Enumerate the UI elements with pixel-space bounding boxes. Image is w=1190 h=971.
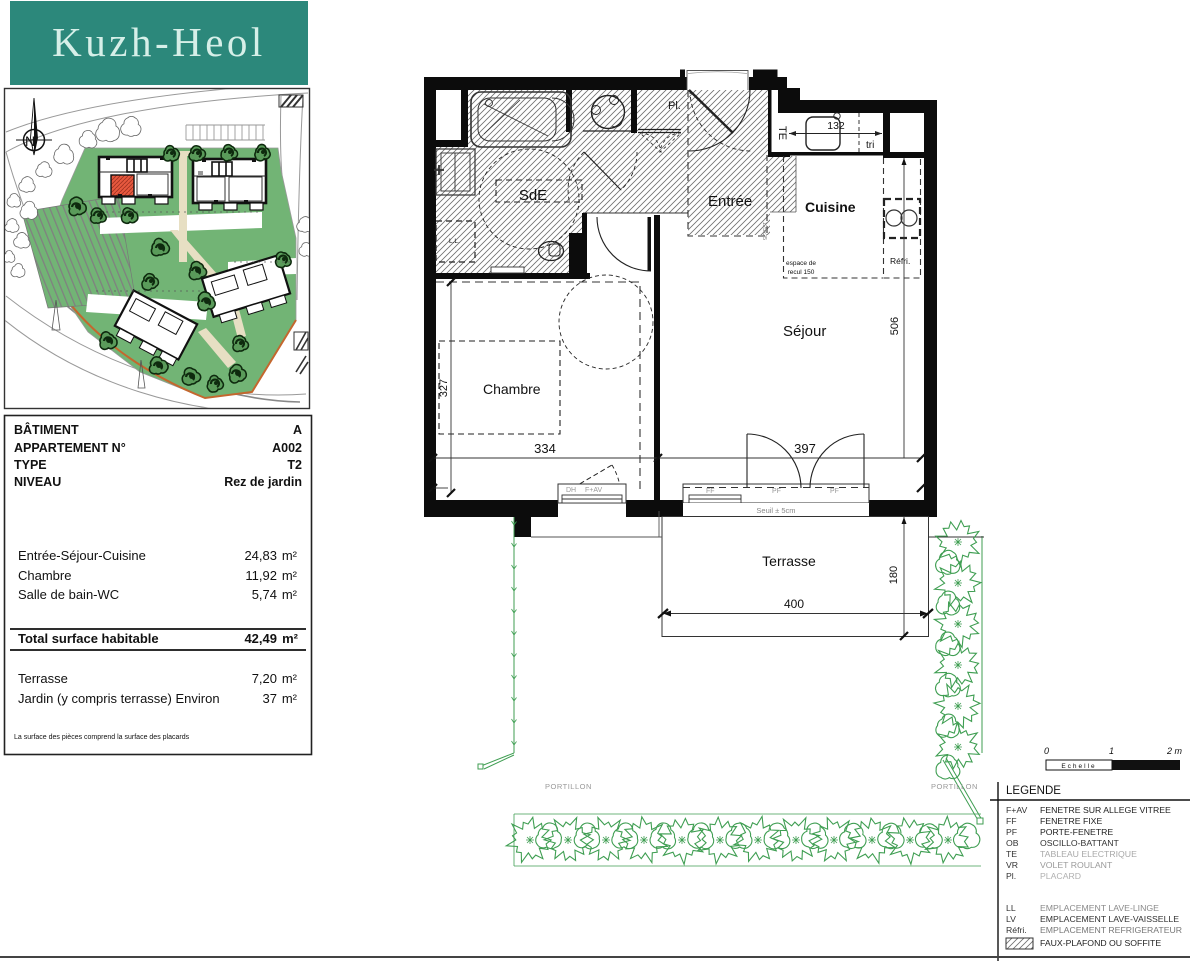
svg-text:VR: VR [1006, 860, 1018, 870]
svg-text:La surface des pièces comprend: La surface des pièces comprend la surfac… [14, 734, 190, 741]
svg-text:397: 397 [794, 441, 816, 456]
svg-text:m²: m² [282, 587, 298, 602]
svg-text:T2: T2 [287, 458, 302, 472]
svg-text:tri: tri [866, 140, 874, 151]
svg-text:0: 0 [1044, 746, 1049, 756]
svg-text:Séjour: Séjour [783, 323, 826, 340]
svg-text:Pl.: Pl. [668, 100, 681, 112]
svg-text:OSCILLO-BATTANT: OSCILLO-BATTANT [1040, 838, 1120, 848]
svg-text:LEGENDE: LEGENDE [1006, 785, 1061, 797]
svg-text:F+AV: F+AV [585, 487, 603, 494]
svg-text:PF: PF [830, 488, 839, 495]
svg-text:Pl.: Pl. [1006, 871, 1016, 881]
svg-text:PF: PF [772, 488, 781, 495]
svg-text:m²: m² [282, 631, 299, 646]
svg-text:TE: TE [776, 126, 788, 140]
svg-text:327: 327 [438, 379, 450, 397]
svg-text:A: A [293, 423, 302, 437]
svg-text:Réfri.: Réfri. [890, 256, 910, 266]
svg-text:Rez de jardin: Rez de jardin [224, 475, 302, 489]
svg-text:Kuzh-Heol: Kuzh-Heol [52, 19, 266, 65]
svg-text:DH: DH [566, 487, 576, 494]
svg-text:PORTILLON: PORTILLON [931, 782, 978, 791]
svg-text:FF: FF [706, 488, 715, 495]
svg-text:Cuisine: Cuisine [805, 199, 856, 215]
svg-text:Entrée: Entrée [708, 193, 752, 210]
svg-text:334: 334 [534, 441, 556, 456]
svg-text:m²: m² [282, 671, 298, 686]
svg-text:125x25: 125x25 [761, 222, 767, 240]
svg-text:Entrée-Séjour-Cuisine: Entrée-Séjour-Cuisine [18, 548, 146, 563]
svg-text:37: 37 [263, 691, 277, 706]
svg-text:LV: LV [1006, 914, 1016, 924]
svg-text:PF: PF [1006, 827, 1017, 837]
svg-text:PLACARD: PLACARD [1040, 871, 1081, 881]
svg-text:VOLET ROULANT: VOLET ROULANT [1040, 860, 1113, 870]
svg-text:2 m: 2 m [1166, 746, 1183, 756]
svg-text:m²: m² [282, 691, 298, 706]
svg-text:m²: m² [282, 548, 298, 563]
svg-text:APPARTEMENT N°: APPARTEMENT N° [14, 441, 126, 455]
svg-text:Chambre: Chambre [483, 381, 541, 397]
svg-text:11,92: 11,92 [245, 568, 277, 583]
svg-text:TABLEAU ELECTRIQUE: TABLEAU ELECTRIQUE [1040, 849, 1137, 859]
svg-text:LL: LL [1006, 903, 1016, 913]
svg-text:7,20: 7,20 [252, 671, 277, 686]
svg-text:F+AV: F+AV [1006, 805, 1028, 815]
svg-text:5,74: 5,74 [252, 587, 277, 602]
svg-text:FAUX-PLAFOND OU SOFFITE: FAUX-PLAFOND OU SOFFITE [1040, 938, 1161, 948]
svg-text:Jardin (y compris terrasse) En: Jardin (y compris terrasse) Environ [18, 691, 220, 706]
svg-text:BÂTIMENT: BÂTIMENT [14, 422, 79, 437]
svg-text:FENETRE SUR ALLEGE VITREE: FENETRE SUR ALLEGE VITREE [1040, 805, 1171, 815]
svg-text:N: N [25, 133, 35, 149]
svg-text:400: 400 [784, 597, 804, 611]
svg-text:L.L.: L.L. [449, 238, 460, 245]
svg-text:A002: A002 [272, 441, 302, 455]
svg-text:PORTILLON: PORTILLON [545, 782, 592, 791]
svg-text:espace de: espace de [786, 260, 816, 267]
svg-text:EMPLACEMENT REFRIGERATEUR: EMPLACEMENT REFRIGERATEUR [1040, 925, 1182, 935]
svg-text:Terrasse: Terrasse [762, 553, 816, 569]
svg-text:506: 506 [889, 317, 901, 335]
svg-text:TYPE: TYPE [14, 458, 47, 472]
svg-text:180: 180 [888, 566, 900, 584]
svg-text:Echelle: Echelle [1061, 763, 1096, 770]
svg-text:EMPLACEMENT LAVE-LINGE: EMPLACEMENT LAVE-LINGE [1040, 903, 1159, 913]
svg-text:Terrasse: Terrasse [18, 671, 68, 686]
svg-text:NIVEAU: NIVEAU [14, 475, 61, 489]
svg-text:recul 150: recul 150 [788, 269, 815, 276]
svg-text:EMPLACEMENT LAVE-VAISSELLE: EMPLACEMENT LAVE-VAISSELLE [1040, 914, 1179, 924]
svg-text:FF: FF [1006, 816, 1017, 826]
svg-text:Salle de bain-WC: Salle de bain-WC [18, 587, 119, 602]
svg-text:FENETRE FIXE: FENETRE FIXE [1040, 816, 1102, 826]
svg-text:1: 1 [1109, 746, 1114, 756]
svg-text:132: 132 [827, 120, 845, 132]
svg-text:42,49: 42,49 [244, 631, 277, 646]
svg-text:Réfri.: Réfri. [1006, 925, 1027, 935]
svg-text:m²: m² [282, 568, 298, 583]
svg-text:Seuil ± 5cm: Seuil ± 5cm [756, 506, 795, 515]
svg-text:TE: TE [1006, 849, 1017, 859]
svg-text:Chambre: Chambre [18, 568, 71, 583]
svg-text:OB: OB [1006, 838, 1019, 848]
svg-text:PORTE-FENETRE: PORTE-FENETRE [1040, 827, 1113, 837]
svg-text:Total surface habitable: Total surface habitable [18, 631, 159, 646]
svg-text:24,83: 24,83 [244, 548, 277, 563]
svg-text:SdE: SdE [519, 187, 547, 204]
